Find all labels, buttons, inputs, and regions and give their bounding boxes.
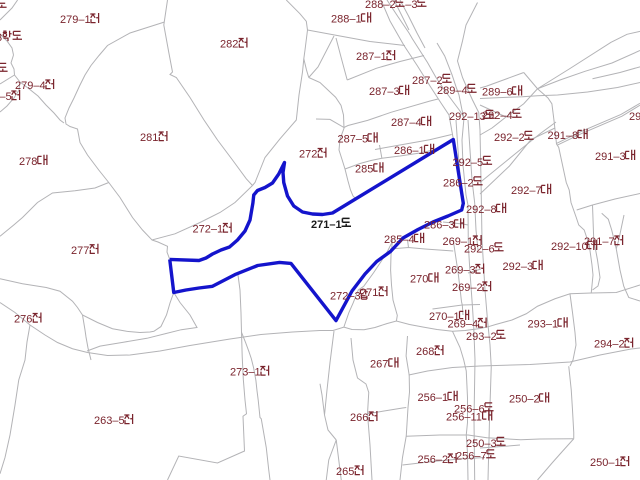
svg-text:263–5: 263–5 [94, 415, 125, 427]
svg-text:272–1: 272–1 [193, 224, 224, 236]
svg-text:289–6: 289–6 [482, 87, 513, 99]
svg-text:292–2: 292–2 [494, 132, 525, 144]
svg-text:250–1: 250–1 [590, 457, 621, 469]
svg-text:288–1: 288–1 [331, 14, 362, 26]
svg-text:286–2: 286–2 [443, 178, 474, 190]
svg-text:–3: –3 [405, 0, 417, 11]
svg-text:294–2: 294–2 [594, 339, 625, 351]
svg-text:272–3: 272–3 [330, 291, 361, 303]
svg-text:292–5: 292–5 [453, 157, 484, 169]
svg-text:279–5: 279–5 [0, 91, 12, 103]
svg-text:269–2: 269–2 [452, 282, 483, 294]
svg-text:291–8: 291–8 [548, 130, 579, 142]
svg-text:287–5: 287–5 [338, 134, 369, 146]
svg-text:281: 281 [140, 132, 158, 144]
svg-text:256–11: 256–11 [446, 412, 482, 424]
svg-text:292–7: 292–7 [511, 185, 542, 197]
svg-text:287–1: 287–1 [356, 51, 387, 63]
svg-text:287–4: 287–4 [391, 117, 422, 129]
svg-text:266: 266 [350, 412, 368, 424]
svg-text:250–3: 250–3 [466, 438, 497, 450]
svg-text:250–2: 250–2 [509, 394, 540, 406]
svg-text:270: 270 [410, 274, 428, 286]
svg-text:288–2: 288–2 [365, 0, 396, 11]
svg-text:292–8: 292–8 [466, 204, 497, 216]
svg-text:282: 282 [220, 39, 238, 51]
svg-text:293–2: 293–2 [466, 331, 497, 343]
svg-text:269–3: 269–3 [445, 265, 476, 277]
svg-text:279–1: 279–1 [60, 14, 91, 26]
svg-text:271–1: 271–1 [311, 219, 342, 231]
svg-text:285–4: 285–4 [384, 234, 415, 246]
svg-text:289–4: 289–4 [437, 85, 468, 97]
svg-text:292–3: 292–3 [503, 261, 534, 273]
svg-text:272: 272 [299, 149, 317, 161]
svg-text:286–1: 286–1 [394, 145, 425, 157]
svg-text:267: 267 [370, 359, 388, 371]
svg-text:276: 276 [14, 314, 32, 326]
svg-text:292–4: 292–4 [482, 110, 513, 122]
svg-text:265: 265 [336, 466, 354, 478]
svg-text:285: 285 [355, 164, 373, 176]
svg-text:287–3: 287–3 [369, 86, 400, 98]
svg-text:291: 291 [629, 111, 640, 123]
svg-text:3: 3 [0, 32, 2, 44]
svg-text:292–6: 292–6 [464, 244, 495, 256]
svg-text:256–7: 256–7 [456, 451, 487, 463]
svg-text:291–7: 291–7 [584, 236, 615, 248]
svg-text:292–10: 292–10 [551, 241, 588, 253]
svg-text:256–1: 256–1 [418, 392, 449, 404]
svg-text:291–3: 291–3 [595, 151, 626, 163]
svg-text:273–1: 273–1 [230, 367, 261, 379]
svg-text:268: 268 [416, 346, 434, 358]
svg-text:278: 278 [19, 156, 37, 168]
svg-text:286–3: 286–3 [424, 220, 455, 232]
svg-text:269–4: 269–4 [448, 319, 479, 331]
svg-text:293–1: 293–1 [528, 319, 559, 331]
svg-text:277: 277 [71, 245, 89, 257]
svg-text:256–2: 256–2 [418, 454, 449, 466]
svg-text:271: 271 [360, 287, 378, 299]
svg-text:292–13: 292–13 [449, 111, 486, 123]
